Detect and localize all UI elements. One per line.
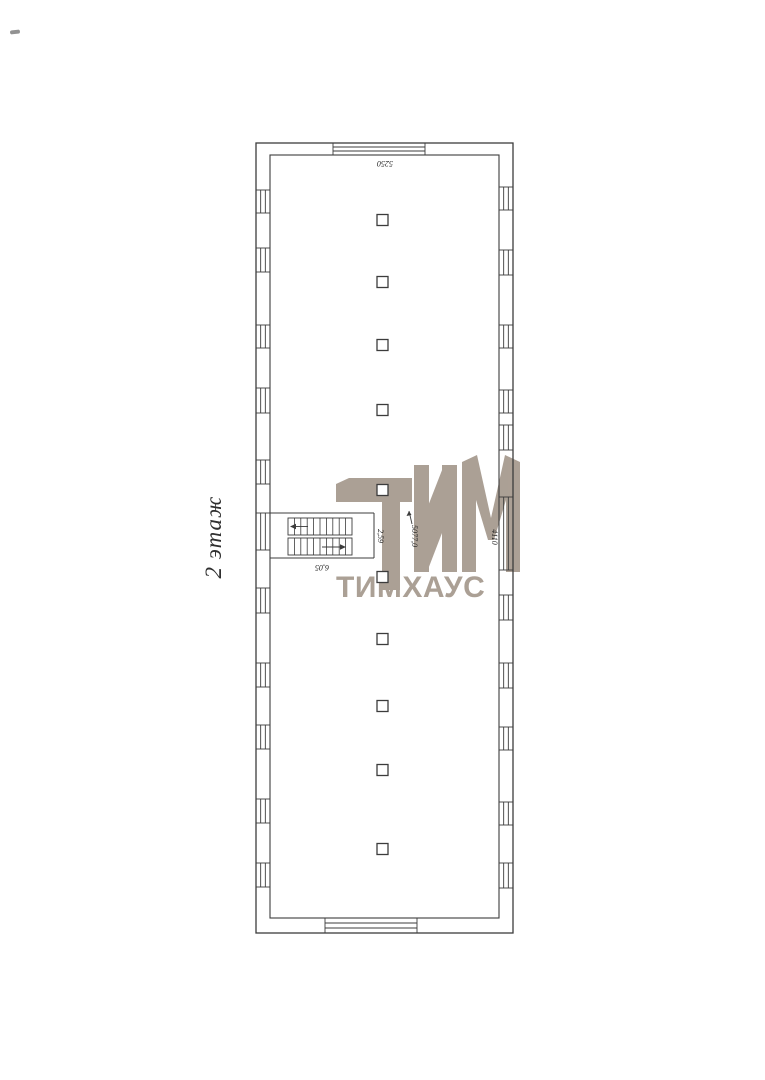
dimension-label-dim-right-wall: 4110	[490, 529, 499, 544]
column-marker	[377, 844, 388, 855]
window-opening-left	[256, 325, 270, 348]
dimension-label-dim-corridor: 5077,0	[410, 525, 419, 547]
logo-letter-i-right	[442, 465, 457, 572]
window-opening-right	[499, 390, 513, 413]
logo-letter-t-bar	[336, 478, 412, 502]
window-opening-left	[256, 248, 270, 272]
window-opening-left	[256, 513, 270, 550]
column-marker	[377, 405, 388, 416]
column-marker	[377, 765, 388, 776]
brand-wordmark: ТИМХАУС	[336, 571, 485, 604]
window-opening-right	[499, 187, 513, 210]
dimension-label-dim-top-wall: 5250	[377, 159, 393, 168]
column-marker	[377, 701, 388, 712]
dimension-label-dim-stairs-width: 6,05	[315, 563, 329, 572]
window-opening-left	[256, 799, 270, 823]
window-opening-left	[256, 190, 270, 213]
window-opening-right	[499, 425, 513, 450]
floor-plan-drawing: ТИМХАУС52506,052,595077,04110	[0, 0, 765, 1080]
window-opening-left	[256, 663, 270, 687]
scanned-floorplan-page: 2 этаж ТИМХАУС52506,052,595077,04110	[0, 0, 765, 1080]
window-opening-right	[499, 595, 513, 620]
window-opening-right	[499, 727, 513, 750]
dimension-leader-arrowhead	[407, 511, 412, 516]
column-marker	[377, 485, 388, 496]
stair-down-arrowhead	[340, 544, 346, 549]
window-opening-left	[256, 460, 270, 484]
window-opening-left	[256, 725, 270, 749]
window-opening-bottom	[325, 918, 417, 933]
staircase	[270, 513, 374, 558]
window-opening-right	[499, 863, 513, 888]
window-opening-right	[499, 802, 513, 825]
window-opening-top	[333, 143, 425, 155]
window-opening-right	[499, 663, 513, 688]
column-marker	[377, 634, 388, 645]
dimension-label-dim-stair-opening: 2,59	[376, 529, 385, 543]
window-opening-left	[256, 388, 270, 413]
logo-letter-m	[462, 455, 520, 572]
column-marker	[377, 572, 388, 583]
column-marker	[377, 340, 388, 351]
column-marker	[377, 215, 388, 226]
window-opening-right	[499, 325, 513, 348]
window-opening-left	[256, 863, 270, 887]
window-opening-right	[499, 250, 513, 275]
window-opening-left	[256, 588, 270, 613]
stair-up-arrowhead	[290, 524, 296, 529]
column-marker	[377, 277, 388, 288]
